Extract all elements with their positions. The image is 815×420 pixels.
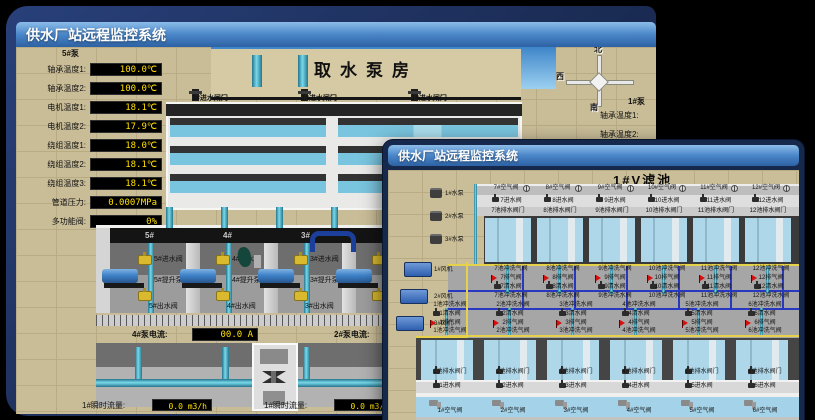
bay-id-label: 4#: [223, 231, 232, 240]
valve-label: 10排气阀: [655, 275, 680, 282]
front-window-titlebar[interactable]: 供水厂站远程监控系统: [388, 145, 799, 166]
room-title: 取水泵房: [314, 61, 418, 80]
riser-pipe: [221, 207, 228, 228]
inlet-valve-label: 5#进水阀: [154, 256, 183, 264]
air-sensor-icon: [575, 185, 582, 192]
outlet-valve-icon[interactable]: [138, 291, 152, 301]
air-valve-label: 8#空气阀: [546, 185, 571, 192]
valve-label: 2#空气阀: [501, 408, 526, 415]
filter-cell: [485, 218, 531, 262]
drain-valve-label: 12池排水阀门: [750, 208, 787, 215]
reading-value: 0.0007MPa: [90, 196, 162, 209]
valve-label: 5#空气阀: [690, 408, 715, 415]
valve-label: 2清水阀: [502, 311, 523, 318]
valve-label: 2进水阀: [502, 383, 523, 390]
valve-label: 9排气阀: [604, 275, 625, 282]
reading-value: 17.9℃: [90, 120, 162, 133]
valve-label: 6池冲洗气阀: [748, 328, 781, 335]
air-sensor-icon: [627, 185, 634, 192]
bearing-temp-label: 轴承温度2:: [600, 130, 639, 139]
blower-icon[interactable]: [400, 289, 428, 304]
bearing-temp-label: 轴承温度1:: [600, 111, 639, 120]
outlet-riser-pipe: [222, 347, 229, 383]
valve-label: 4排气阀: [628, 320, 649, 327]
valve-label: 1#空气阀: [438, 408, 463, 415]
valve-label: 9池冲洗气阀: [598, 266, 631, 273]
valve-label: 3进水阀: [565, 383, 586, 390]
valve-label: 11排气阀: [707, 275, 731, 282]
valve-label: 5进水阀: [691, 383, 712, 390]
lift-pump[interactable]: [258, 269, 294, 283]
lift-pump[interactable]: [102, 269, 138, 283]
valve-label: 4进水阀: [628, 383, 649, 390]
exhaust-flag-icon[interactable]: [494, 320, 499, 326]
air-pipe-bottom: [448, 335, 799, 337]
cell-stripe: [672, 218, 679, 262]
valve-label: 8池冲洗气阀: [546, 266, 579, 273]
pump-current-label: 2#泵电流:: [334, 330, 370, 339]
inlet-valve-icon[interactable]: [492, 197, 499, 202]
pipe: [252, 55, 262, 87]
reading-label: 轴承温度1:: [18, 65, 86, 74]
cell-line: [497, 218, 499, 262]
inlet-valve-label: 10进水阀: [655, 198, 680, 205]
valve-label: 5池冲洗水阀: [685, 302, 718, 309]
valve-label: 11池冲洗水阀: [701, 293, 737, 300]
wash-pump-icon[interactable]: [430, 211, 442, 221]
flow-value: 0.0 m3/h: [152, 399, 212, 411]
air-valve-icon[interactable]: [681, 400, 690, 406]
reading-label: 绕组温度3:: [18, 179, 86, 188]
inlet-valve-icon[interactable]: [544, 197, 551, 202]
air-valve-icon[interactable]: [744, 400, 753, 406]
channel-slot: [170, 118, 518, 125]
valve-label: 1池排水阀门: [433, 369, 466, 376]
outlet-valve-label: 4#出水阀: [227, 303, 256, 311]
reading-value: 100.0℃: [90, 82, 162, 95]
valve-label: 3池排水阀门: [559, 369, 592, 376]
bottom-pools: [416, 338, 799, 380]
air-sensor-icon: [783, 185, 790, 192]
reading-label: 电机温度2:: [18, 122, 86, 131]
right-pump-header: 1#泵: [628, 97, 645, 106]
filter-cell: [693, 218, 739, 262]
lift-pump-label: 3#提升泵: [310, 277, 339, 285]
valve-label: 12池冲洗水阀: [753, 293, 790, 300]
valve-label: 8池冲洗水阀: [546, 293, 579, 300]
valve-label: 12清水阀: [759, 284, 784, 291]
reading-value: 100.0℃: [90, 63, 162, 76]
inlet-valve-label: 3#进水阀: [310, 256, 339, 264]
back-window-titlebar[interactable]: 供水厂站远程监控系统: [16, 22, 656, 47]
pump-current-label: 4#泵电流:: [132, 330, 168, 339]
top-pools: [484, 216, 799, 264]
lift-pump-label: 5#提升泵: [154, 277, 183, 285]
valve-label: 4池冲洗水阀: [622, 302, 655, 309]
outlet-valve-label: 3#出水阀: [305, 303, 334, 311]
compass-north: 北: [594, 47, 602, 54]
valve-label: 1池冲洗水阀: [433, 302, 466, 309]
exhaust-flag-icon[interactable]: [620, 320, 625, 326]
pipe: [298, 55, 308, 87]
valve-label: 10池冲洗气阀: [649, 266, 686, 273]
cell-stripe: [724, 218, 731, 262]
outlet-valve-icon[interactable]: [216, 291, 230, 301]
reading-value: 18.1℃: [90, 158, 162, 171]
valve-label: 11池冲洗气阀: [701, 266, 737, 273]
valve-label: 3池冲洗气阀: [559, 328, 592, 335]
valve-label: 9清水阀: [604, 284, 625, 291]
reading-value: 18.0℃: [90, 139, 162, 152]
filter-cell: [589, 218, 635, 262]
filter-cell: [537, 218, 583, 262]
top-wall: [476, 195, 799, 207]
wash-pump-label: 2#水泵: [445, 214, 464, 221]
reading-label: 绕组温度1:: [18, 141, 86, 150]
valve-label: 5清水阀: [691, 311, 712, 318]
wash-pump-label: 1#水泵: [445, 191, 464, 198]
blower-icon[interactable]: [396, 316, 424, 331]
compass-star: [589, 72, 609, 92]
valve-label: 5池排水阀门: [685, 369, 718, 376]
control-cabinet: [254, 255, 261, 268]
pump-base: [104, 283, 144, 288]
cell-line: [549, 218, 551, 262]
air-valve-label: 7#空气阀: [494, 185, 519, 192]
air-valve-label: 9#空气阀: [598, 185, 623, 192]
valve-label: 6池排水阀门: [748, 369, 781, 376]
inlet-valve-label: 8进水阀: [552, 198, 573, 205]
front-window-title: 供水厂站远程监控系统: [398, 147, 518, 164]
valve-label: 4#空气阀: [627, 408, 652, 415]
reading-label: 轴承温度2:: [18, 84, 86, 93]
pump-panel-header: 5#泵: [62, 49, 79, 58]
pump-current-value: 00.0 A: [192, 328, 258, 341]
pump-base: [260, 283, 300, 288]
outlet-valve-label: 5#出水阀: [149, 303, 178, 311]
lift-pump-label: 4#提升泵: [232, 277, 261, 285]
blower-label: 1#风机: [434, 267, 453, 274]
valve-label: 12池冲洗气阀: [753, 266, 790, 273]
equipment-pipe: [474, 184, 477, 264]
drain-valve-label: 11池排水阀门: [698, 208, 734, 215]
air-valve-label: 12#空气阀: [752, 185, 780, 192]
inlet-valve-label: 11进水阀: [707, 198, 731, 205]
valve-label: 7池冲洗气阀: [494, 266, 527, 273]
air-sensor-icon: [523, 185, 530, 192]
outlet-valve-icon[interactable]: [294, 291, 308, 301]
pump-base: [338, 283, 378, 288]
air-valve-label: 11#空气阀: [700, 185, 728, 192]
inlet-valve-label: 12进水阀: [759, 198, 784, 205]
outlet-riser-pipe: [135, 347, 142, 383]
gate-valve-label: 1#进水闸门: [411, 95, 447, 103]
valve-station-valve-icon[interactable]: [262, 371, 286, 383]
gate-valve-label: 3#进水闸门: [192, 95, 228, 103]
valve-label: 9池冲洗水阀: [598, 293, 631, 300]
valve-label: 1池冲洗气阀: [433, 328, 466, 335]
valve-label: 7排气阀: [500, 275, 521, 282]
channel-water: [170, 125, 518, 137]
equipment-air-pipe-h: [416, 336, 468, 338]
reading-value: 18.1℃: [90, 177, 162, 190]
exhaust-flag-icon[interactable]: [746, 320, 751, 326]
inlet-valve-icon[interactable]: [138, 255, 152, 265]
valve-label: 8排气阀: [552, 275, 573, 282]
wash-pump-icon[interactable]: [430, 234, 442, 244]
bay-id-label: 3#: [301, 231, 310, 240]
wash-pump-icon[interactable]: [430, 188, 442, 198]
reading-label: 绕组温度2:: [18, 160, 86, 169]
inlet-valve-label: 9进水阀: [604, 198, 625, 205]
valve-label: 1清水阀: [439, 311, 460, 318]
reading-label: 管道压力:: [18, 198, 86, 207]
lift-pump[interactable]: [336, 269, 372, 283]
valve-label: 1进水阀: [439, 383, 460, 390]
valve-label: 3排气阀: [565, 320, 586, 327]
valve-label: 10清水阀: [655, 284, 680, 291]
drain-valve-label: 10池排水阀门: [646, 208, 683, 215]
valve-label: 12排气阀: [759, 275, 784, 282]
valve-label: 6进水阀: [754, 383, 775, 390]
air-valve-icon[interactable]: [618, 400, 627, 406]
compass-west: 西: [556, 72, 564, 81]
air-sensor-icon: [679, 185, 686, 192]
drain-valve-label: 9池排水阀门: [595, 208, 628, 215]
valve-label: 5池冲洗气阀: [685, 328, 718, 335]
back-window-title: 供水厂站远程监控系统: [26, 25, 166, 45]
valve-label: 3池冲洗水阀: [559, 302, 592, 309]
air-valve-icon[interactable]: [492, 400, 501, 406]
bay-id-label: 5#: [145, 231, 154, 240]
valve-label: 8清水阀: [552, 284, 573, 291]
reading-label: 多功能阀:: [18, 217, 86, 226]
valve-label: 6池冲洗水阀: [748, 302, 781, 309]
riser-pipe: [331, 207, 338, 228]
valve-label: 7清水阀: [500, 284, 521, 291]
valve-label: 3清水阀: [565, 311, 586, 318]
compass-south: 南: [590, 103, 598, 112]
filter-cell: [641, 218, 687, 262]
cell-line: [705, 218, 707, 262]
filter-cell: [745, 218, 791, 262]
valve-label: 6排气阀: [754, 320, 775, 327]
wash-pump-label: 3#水泵: [445, 237, 464, 244]
air-valve-icon[interactable]: [429, 400, 438, 406]
valve-label: 3#空气阀: [564, 408, 589, 415]
valve-station-panel: [260, 349, 288, 364]
valve-label: 10池冲洗水阀: [649, 293, 686, 300]
blower-icon[interactable]: [404, 262, 432, 277]
valve-label: 7池冲洗水阀: [494, 293, 527, 300]
lift-pump[interactable]: [180, 269, 216, 283]
clean-water-channel: [416, 397, 799, 417]
valve-label: 11清水阀: [707, 284, 731, 291]
valve-label: 6#空气阀: [753, 408, 778, 415]
valve-label: 2池冲洗水阀: [496, 302, 529, 309]
exhaust-flag-icon[interactable]: [683, 320, 688, 326]
equipment-air-pipe: [466, 262, 468, 338]
inlet-valve-icon[interactable]: [294, 255, 308, 265]
riser-pipe: [276, 207, 283, 228]
compass: 北 西 南: [556, 47, 656, 117]
valve-label: 4清水阀: [628, 311, 649, 318]
air-sensor-icon: [731, 185, 738, 192]
cell-stripe: [568, 218, 575, 262]
drain-valve-label: 7池排水阀门: [491, 208, 524, 215]
gate-valve-label: 2#进水闸门: [301, 95, 337, 103]
reading-label: 电机温度1:: [18, 103, 86, 112]
valve-label: 2池冲洗气阀: [496, 328, 529, 335]
cell-stripe: [776, 218, 783, 262]
valve-label: 4池冲洗气阀: [622, 328, 655, 335]
intake-structure-topband: [166, 104, 522, 116]
cell-line: [757, 218, 759, 262]
blower-label: 3#风机: [434, 321, 453, 328]
riser-pipe: [166, 207, 173, 228]
inlet-valve-label: 7进水阀: [500, 198, 521, 205]
u-pipe: [310, 231, 356, 252]
reading-value: 18.1℃: [90, 101, 162, 114]
inlet-valve-icon[interactable]: [596, 197, 603, 202]
flow-label: 1#瞬时流量:: [264, 401, 307, 410]
air-valve-icon[interactable]: [555, 400, 564, 406]
valve-label: 2池排水阀门: [496, 369, 529, 376]
cell-line: [601, 218, 603, 262]
filter-pool-scene: 1#V滤池 7池冲洗气阀8池冲洗气阀9池冲洗气阀10池冲洗气阀11池冲洗气阀12…: [388, 170, 799, 420]
flow-label: 1#瞬时流量:: [82, 401, 125, 410]
air-valve-label: 10#空气阀: [648, 185, 676, 192]
blower-label: 2#风机: [434, 294, 453, 301]
valve-label: 2排气阀: [502, 320, 523, 327]
cell-stripe: [516, 218, 523, 262]
cell-line: [653, 218, 655, 262]
pump-base: [182, 283, 222, 288]
valve-label: 5排气阀: [691, 320, 712, 327]
filter-pool-window: 供水厂站远程监控系统 1#V滤池 7池冲洗气阀8池冲洗气阀9池冲洗气阀10池冲洗…: [383, 140, 804, 420]
cell-stripe: [620, 218, 627, 262]
exhaust-flag-icon[interactable]: [557, 320, 562, 326]
channel-wall: [326, 116, 338, 196]
valve-label: 6清水阀: [754, 311, 775, 318]
valve-label: 4池排水阀门: [622, 369, 655, 376]
outlet-riser-pipe: [303, 347, 310, 383]
inlet-valve-icon[interactable]: [216, 255, 230, 265]
drain-valve-label: 8池排水阀门: [543, 208, 576, 215]
